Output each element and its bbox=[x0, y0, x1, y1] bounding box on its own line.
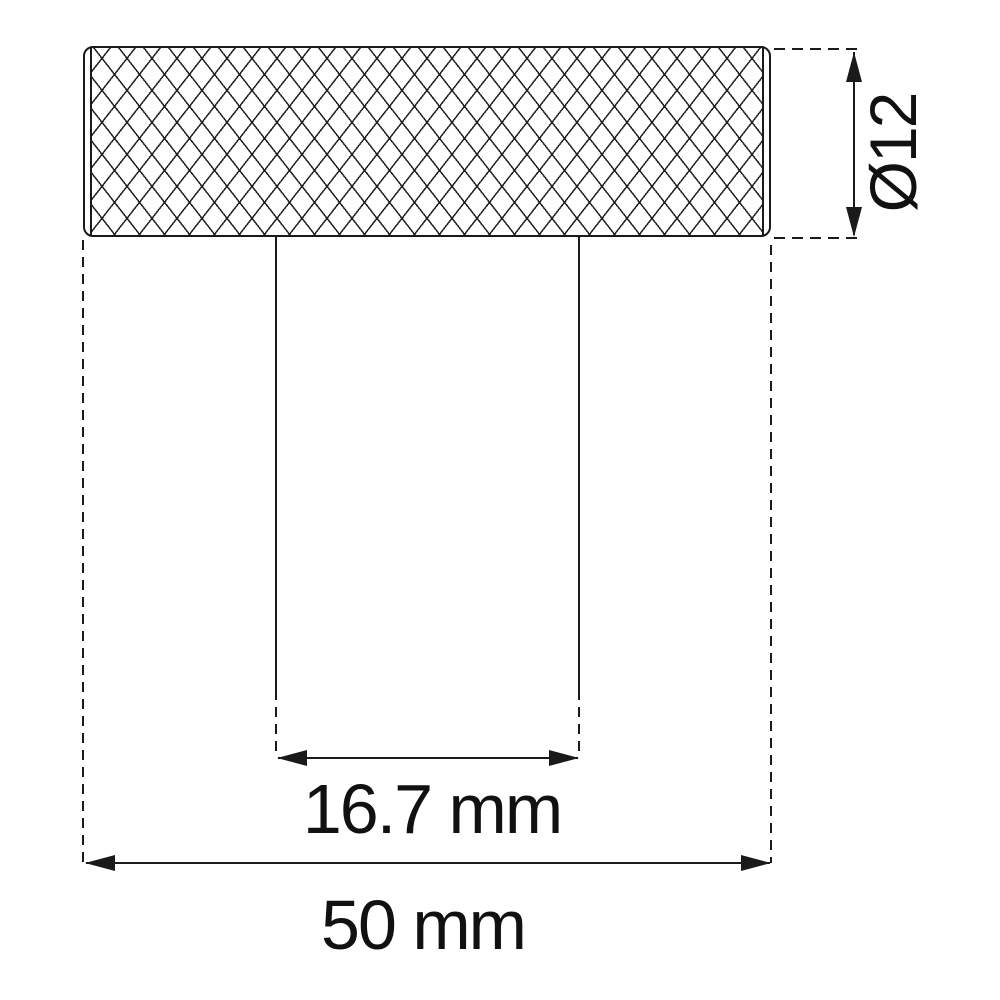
knurl-crosshatch-pattern bbox=[91, 48, 763, 235]
overall-width-arrowhead-left-icon bbox=[85, 855, 115, 871]
shaft-width-arrowhead-right-icon bbox=[549, 750, 579, 766]
knob-body-outline bbox=[83, 46, 771, 237]
right-edge-extension-dashed-line bbox=[770, 245, 772, 863]
shaft-left-contour-line bbox=[275, 237, 277, 690]
overall-width-dimension-line bbox=[86, 862, 770, 864]
bottom-right-extension-dashed-line bbox=[774, 237, 858, 239]
shaft-right-extension-dashed-line bbox=[578, 690, 580, 758]
knob-left-end-cap-line bbox=[90, 48, 92, 235]
left-edge-extension-dashed-line bbox=[82, 240, 84, 863]
overall-width-dimension-label: 50 mm bbox=[321, 885, 525, 965]
technical-drawing: Ø12 16.7 mm 50 mm bbox=[0, 0, 1000, 1000]
shaft-right-contour-line bbox=[578, 237, 580, 690]
shaft-left-extension-dashed-line bbox=[275, 690, 277, 758]
shaft-width-arrowhead-left-icon bbox=[277, 750, 307, 766]
diameter-arrowhead-up-icon bbox=[846, 52, 862, 82]
diameter-dimension-label: Ø12 bbox=[855, 94, 931, 213]
shaft-width-dimension-label: 16.7 mm bbox=[303, 769, 561, 849]
top-right-extension-dashed-line bbox=[774, 48, 858, 50]
knob-right-end-cap-line bbox=[762, 48, 764, 235]
overall-width-arrowhead-right-icon bbox=[741, 855, 771, 871]
shaft-width-dimension-line bbox=[278, 757, 578, 759]
